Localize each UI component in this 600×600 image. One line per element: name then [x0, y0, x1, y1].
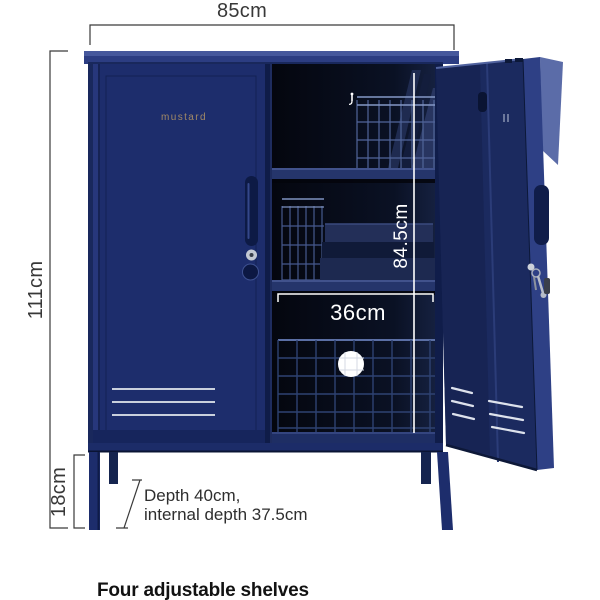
- side-panel: [540, 57, 563, 165]
- door-handle: [245, 176, 258, 246]
- caption-text: Four adjustable shelves: [97, 580, 397, 600]
- vent-hole: [338, 351, 364, 377]
- bottom-rail: [88, 443, 443, 452]
- locker-leg-front-right: [437, 452, 453, 530]
- brand-logo: mustard: [149, 112, 219, 123]
- shelf: [270, 280, 435, 295]
- height-dimension-label: 111cm: [25, 255, 47, 325]
- leg-height-dimension-label: 18cm: [48, 462, 70, 522]
- folded-linens: [320, 224, 435, 283]
- depth-note-line2: internal depth 37.5cm: [144, 505, 308, 524]
- internal-width-label: 36cm: [327, 300, 389, 324]
- leg-height-dimension-bracket: [74, 455, 85, 528]
- width-dimension-bracket: [90, 25, 454, 50]
- product-dimension-diagram: 85cm 111cm 18cm 84.5cm 36cm Depth 40cm, …: [0, 0, 600, 600]
- depth-note: Depth 40cm, internal depth 37.5cm: [144, 486, 308, 524]
- open-door: [436, 57, 563, 470]
- door-handle-back: [534, 185, 549, 245]
- height-dimension-bracket: [50, 51, 68, 528]
- locker-leg-back-left: [109, 452, 118, 484]
- depth-note-line1: Depth 40cm,: [144, 486, 308, 505]
- locker-leg-back-right: [421, 452, 431, 484]
- inner-lock-housing: [478, 92, 487, 112]
- width-dimension-label: 85cm: [212, 0, 272, 23]
- internal-height-label: 84.5cm: [391, 194, 413, 278]
- shelf: [270, 168, 435, 183]
- depth-leader-line: [116, 480, 142, 528]
